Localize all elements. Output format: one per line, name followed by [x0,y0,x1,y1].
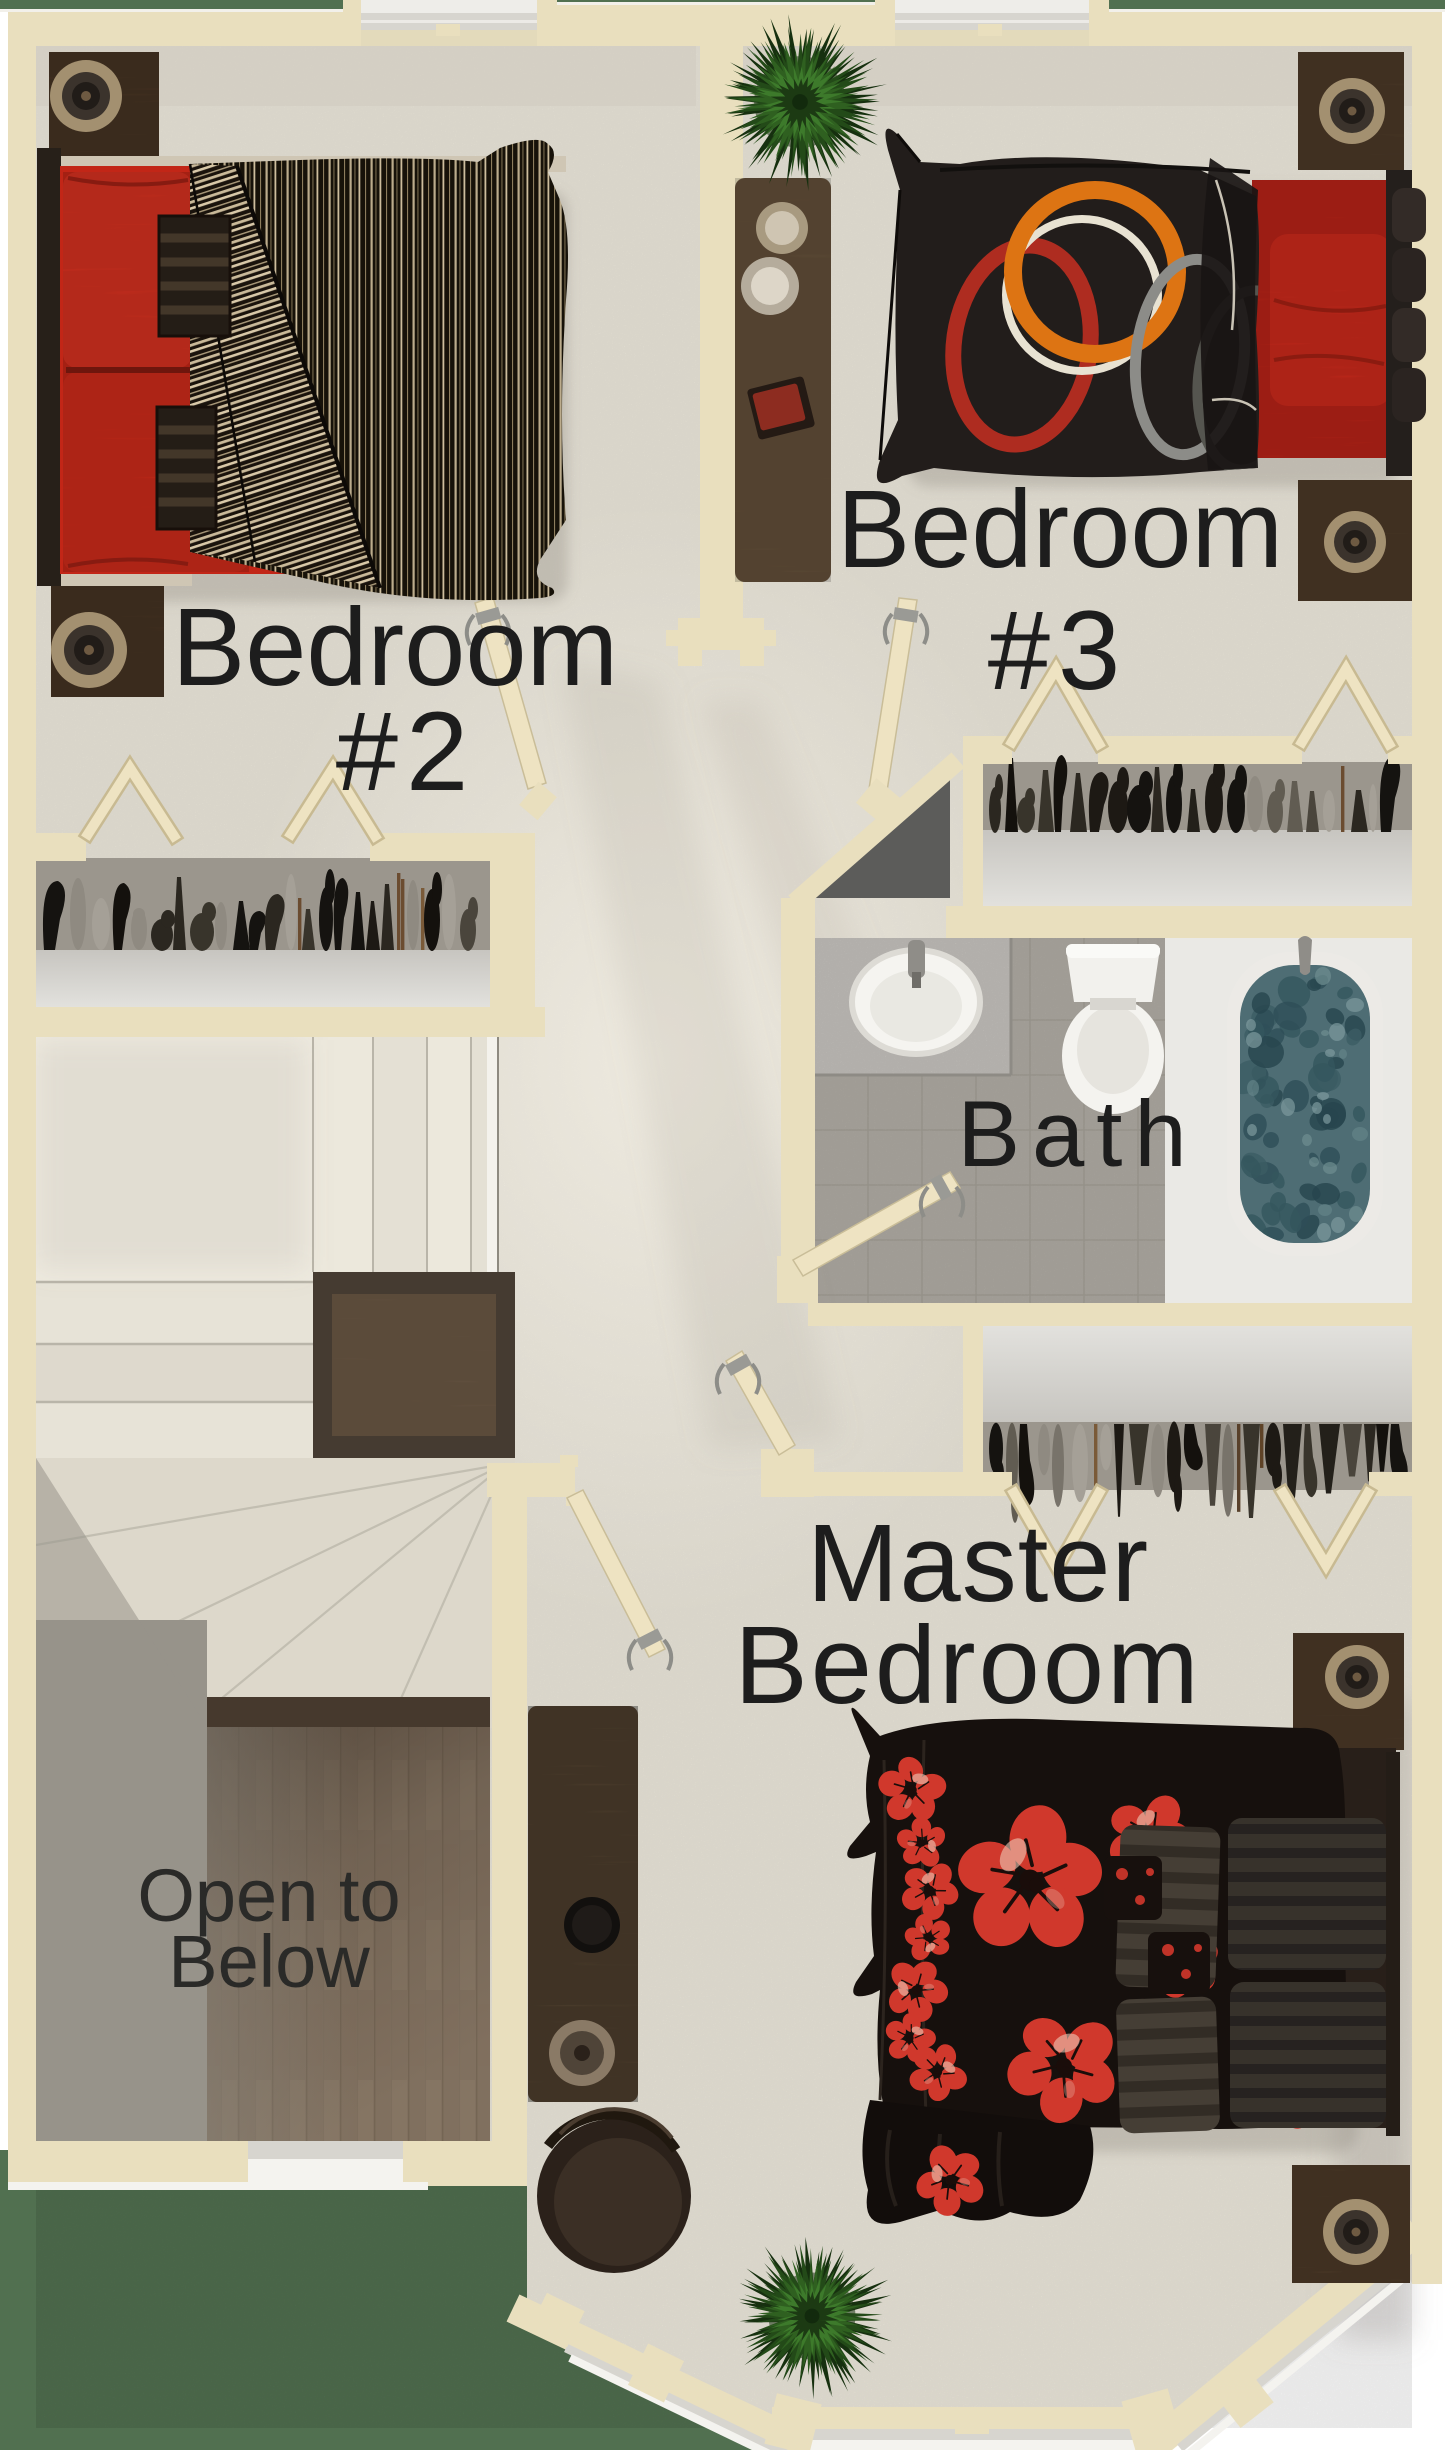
svg-text:Bedroom: Bedroom [734,1604,1201,1727]
svg-text:#3: #3 [988,588,1129,713]
svg-text:#2: #2 [336,689,477,814]
svg-text:Below: Below [168,1920,370,2003]
svg-text:Bedroom: Bedroom [837,468,1283,591]
svg-text:Bath: Bath [957,1081,1198,1186]
